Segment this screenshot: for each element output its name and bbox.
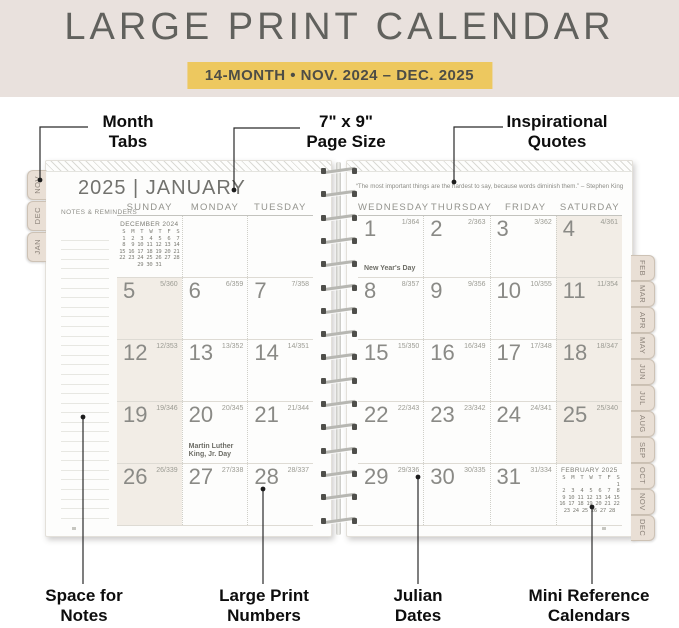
- day-number: 2: [430, 216, 442, 242]
- julian-date: 14/351: [288, 343, 309, 350]
- day-cell: 1212/353: [117, 340, 182, 401]
- right-month-grid: 11/364New Year's Day 22/363 33/362 44/36…: [358, 216, 622, 526]
- day-header-monday: MONDAY: [182, 202, 247, 213]
- day-cell: 1313/352: [182, 340, 248, 401]
- spiral-end-left: [321, 168, 326, 174]
- page-top-hatch: [46, 161, 331, 172]
- spiral-loop: [320, 422, 358, 432]
- mini-calendar-row: S M T W T F S: [118, 229, 181, 236]
- day-header-tuesday: TUESDAY: [248, 202, 313, 213]
- spiral-loop: [320, 283, 358, 293]
- tab-label: AUG: [638, 415, 647, 433]
- julian-date: 28/337: [288, 467, 309, 474]
- notes-lines: [61, 231, 109, 519]
- note-line: [61, 231, 109, 241]
- spiral-loop: [320, 259, 358, 269]
- day-number: 18: [563, 340, 587, 366]
- day-number: 22: [364, 402, 388, 428]
- callout-large-print-numbers: Large Print Numbers: [211, 586, 317, 626]
- julian-date: 25/340: [597, 405, 618, 412]
- day-cell: 77/358: [247, 278, 313, 339]
- day-cell: 66/359: [182, 278, 248, 339]
- julian-date: 6/359: [226, 281, 244, 288]
- day-number: 3: [497, 216, 509, 242]
- day-cell: 2323/342: [423, 402, 489, 463]
- tab-label: FEB: [638, 260, 647, 276]
- spiral-wire: [322, 376, 356, 384]
- julian-date: 31/334: [530, 467, 551, 474]
- spiral-end-left: [321, 401, 326, 407]
- callout-line: Page Size: [298, 132, 394, 152]
- day-header-thursday: THURSDAY: [429, 202, 493, 213]
- day-cell: 1515/350: [358, 340, 423, 401]
- spiral-end-right: [352, 448, 357, 454]
- mini-calendar-february: FEBRUARY 2025 S M T W T F S 1 2 3 4 5 6 …: [558, 467, 621, 515]
- day-cell: 11/364New Year's Day: [358, 216, 423, 277]
- julian-date: 20/345: [222, 405, 243, 412]
- julian-date: 2/363: [468, 219, 486, 226]
- julian-date: 11/354: [597, 281, 618, 288]
- week-row: 2626/339 2727/338 2828/337: [117, 464, 313, 526]
- day-number: 16: [430, 340, 454, 366]
- page-number-mark: [602, 527, 606, 530]
- spiral-wire: [322, 470, 356, 478]
- day-cell: [182, 216, 248, 277]
- month-tab-feb: FEB: [631, 255, 655, 281]
- tab-label: JUN: [638, 364, 647, 380]
- day-number: 10: [497, 278, 521, 304]
- mini-calendar-row: 29 30 31: [118, 262, 181, 269]
- day-cell: 33/362: [490, 216, 556, 277]
- julian-date: 22/343: [398, 405, 419, 412]
- note-line: [61, 500, 109, 510]
- callout-line: Calendars: [524, 606, 654, 626]
- week-row: 11/364New Year's Day 22/363 33/362 44/36…: [358, 216, 622, 278]
- mini-calendar-row: 22 23 24 25 26 27 28: [118, 255, 181, 262]
- note-line: [61, 375, 109, 385]
- spiral-wire: [322, 353, 356, 361]
- day-cell: DECEMBER 2024 S M T W T F S 1 2 3 4 5 6 …: [117, 216, 182, 277]
- day-number: 19: [123, 402, 147, 428]
- note-line: [61, 356, 109, 366]
- julian-date: 23/342: [464, 405, 485, 412]
- spiral-end-left: [321, 471, 326, 477]
- spiral-end-left: [321, 494, 326, 500]
- spiral-end-right: [352, 354, 357, 360]
- spiral-end-left: [321, 354, 326, 360]
- spiral-end-right: [352, 191, 357, 197]
- spiral-wire: [322, 423, 356, 431]
- day-number: 21: [254, 402, 278, 428]
- day-number: 31: [497, 464, 521, 490]
- month-tab-jul: JUL: [631, 385, 655, 411]
- julian-date: 17/348: [530, 343, 551, 350]
- month-title: 2025 | JANUARY: [78, 177, 246, 200]
- callout-line: Month: [90, 112, 166, 132]
- day-cell: 2828/337: [247, 464, 313, 525]
- day-cell: FEBRUARY 2025 S M T W T F S 1 2 3 4 5 6 …: [556, 464, 622, 525]
- tab-label: NOV: [638, 493, 647, 511]
- spiral-end-left: [321, 331, 326, 337]
- holiday-label: Martin Luther King, Jr. Day: [189, 443, 244, 459]
- day-cell: 1111/354: [556, 278, 622, 339]
- callout-julian-dates: Julian Dates: [372, 586, 464, 626]
- julian-date: 4/361: [600, 219, 618, 226]
- tab-label: OCT: [638, 467, 647, 484]
- note-line: [61, 241, 109, 251]
- spiral-loop: [320, 213, 358, 223]
- callout-line: 7" x 9": [298, 112, 394, 132]
- calendar-left-page: 2025 | JANUARY NOTES & REMINDERS SUNDAY …: [45, 160, 332, 537]
- day-of-week-headers: WEDNESDAY THURSDAY FRIDAY SATURDAY: [358, 201, 622, 216]
- note-line: [61, 269, 109, 279]
- julian-date: 27/338: [222, 467, 243, 474]
- day-number: 7: [254, 278, 266, 304]
- spiral-end-right: [352, 471, 357, 477]
- day-number: 13: [189, 340, 213, 366]
- spiral-wire: [322, 237, 356, 245]
- note-line: [61, 365, 109, 375]
- callout-line: Space for: [36, 586, 132, 606]
- month-tab-apr: APR: [631, 307, 655, 333]
- note-line: [61, 327, 109, 337]
- spiral-end-right: [352, 285, 357, 291]
- spiral-loop: [320, 189, 358, 199]
- callout-mini-reference-calendars: Mini Reference Calendars: [524, 586, 654, 626]
- inspirational-quote: “The most important things are the harde…: [347, 183, 632, 190]
- spiral-end-left: [321, 424, 326, 430]
- note-line: [61, 298, 109, 308]
- month-tab-may: MAY: [631, 333, 655, 359]
- day-number: 23: [430, 402, 454, 428]
- note-line: [61, 289, 109, 299]
- month-tab-dec: DEC: [27, 201, 46, 231]
- day-cell: 2727/338: [182, 464, 248, 525]
- callout-line: Quotes: [503, 132, 611, 152]
- spiral-loop: [320, 399, 358, 409]
- spiral-end-left: [321, 215, 326, 221]
- week-row: 1212/353 1313/352 1414/351: [117, 340, 313, 402]
- day-number: 30: [430, 464, 454, 490]
- mini-calendar-row: 1: [558, 482, 621, 489]
- julian-date: 10/355: [530, 281, 551, 288]
- note-line: [61, 279, 109, 289]
- spiral-wire: [322, 190, 356, 198]
- day-number: 28: [254, 464, 278, 490]
- note-line: [61, 308, 109, 318]
- spiral-end-left: [321, 448, 326, 454]
- month-tab-aug: AUG: [631, 411, 655, 437]
- day-number: 5: [123, 278, 135, 304]
- tab-label: JAN: [33, 239, 42, 255]
- spiral-end-left: [321, 308, 326, 314]
- day-cell: 1818/347: [556, 340, 622, 401]
- day-of-week-headers: SUNDAY MONDAY TUESDAY: [117, 201, 313, 216]
- month-tab-dec2: DEC: [631, 515, 655, 541]
- month-tab-nov: NOV: [27, 170, 46, 200]
- spiral-wire: [322, 516, 356, 524]
- callout-line: Large Print: [211, 586, 317, 606]
- day-cell: 2424/341: [490, 402, 556, 463]
- day-cell: [247, 216, 313, 277]
- spiral-end-left: [321, 378, 326, 384]
- week-row: 2929/336 3030/335 3131/334 FEBRUARY 2025…: [358, 464, 622, 526]
- note-line: [61, 260, 109, 270]
- day-cell: 1616/349: [423, 340, 489, 401]
- note-line: [61, 250, 109, 260]
- month-tab-jan: JAN: [27, 232, 46, 262]
- mini-calendar-row: 8 9 10 11 12 13 14: [118, 242, 181, 249]
- calendar-right-page: “The most important things are the harde…: [346, 160, 633, 537]
- day-number: 25: [563, 402, 587, 428]
- day-header-saturday: SATURDAY: [558, 202, 622, 213]
- julian-date: 15/350: [398, 343, 419, 350]
- callout-line: Notes: [36, 606, 132, 626]
- day-cell: 3030/335: [423, 464, 489, 525]
- day-cell: 2121/344: [247, 402, 313, 463]
- spiral-wire: [322, 213, 356, 221]
- callout-space-for-notes: Space for Notes: [36, 586, 132, 626]
- julian-date: 7/358: [291, 281, 309, 288]
- spiral-wire: [322, 283, 356, 291]
- spiral-end-right: [352, 331, 357, 337]
- week-row: 1515/350 1616/349 1717/348 1818/347: [358, 340, 622, 402]
- julian-date: 12/353: [156, 343, 177, 350]
- julian-date: 5/360: [160, 281, 178, 288]
- callout-line: Dates: [372, 606, 464, 626]
- mini-calendar-row: S M T W T F S: [558, 475, 621, 482]
- tab-label: DEC: [638, 519, 647, 536]
- note-line: [61, 385, 109, 395]
- day-cell: 2626/339: [117, 464, 182, 525]
- day-header-friday: FRIDAY: [494, 202, 558, 213]
- spiral-end-right: [352, 424, 357, 430]
- page-top-hatch: [347, 161, 632, 172]
- day-number: 17: [497, 340, 521, 366]
- week-row: 55/360 66/359 77/358: [117, 278, 313, 340]
- julian-date: 13/352: [222, 343, 243, 350]
- note-line: [61, 442, 109, 452]
- day-number: 9: [430, 278, 442, 304]
- note-line: [61, 346, 109, 356]
- spiral-wire: [322, 260, 356, 268]
- spiral-end-right: [352, 261, 357, 267]
- tab-label: SEP: [638, 442, 647, 459]
- note-line: [61, 490, 109, 500]
- spiral-loop: [320, 306, 358, 316]
- spiral-loop: [320, 516, 358, 526]
- spiral-loop: [320, 446, 358, 456]
- day-number: 11: [563, 278, 586, 304]
- spiral-end-right: [352, 518, 357, 524]
- tab-label: MAR: [638, 285, 647, 303]
- spiral-loop: [320, 376, 358, 386]
- day-number: 29: [364, 464, 388, 490]
- mini-calendar-december: DECEMBER 2024 S M T W T F S 1 2 3 4 5 6 …: [118, 221, 181, 269]
- note-line: [61, 317, 109, 327]
- note-line: [61, 404, 109, 414]
- day-cell: 3131/334: [490, 464, 556, 525]
- mini-calendar-row: 23 24 25 26 27 28: [558, 508, 621, 515]
- month-tab-oct: OCT: [631, 463, 655, 489]
- day-cell: 2525/340: [556, 402, 622, 463]
- product-title: LARGE PRINT CALENDAR: [0, 6, 679, 49]
- tab-label: MAY: [638, 337, 647, 354]
- spiral-end-right: [352, 401, 357, 407]
- spiral-loop: [320, 329, 358, 339]
- tab-label: DEC: [33, 207, 42, 224]
- spiral-loop: [320, 352, 358, 362]
- day-cell: 2020/345Martin Luther King, Jr. Day: [182, 402, 248, 463]
- day-number: 4: [563, 216, 575, 242]
- note-line: [61, 471, 109, 481]
- spiral-end-left: [321, 238, 326, 244]
- note-line: [61, 394, 109, 404]
- julian-date: 24/341: [530, 405, 551, 412]
- day-cell: 1717/348: [490, 340, 556, 401]
- tab-label: APR: [638, 312, 647, 329]
- spiral-wire: [322, 493, 356, 501]
- julian-date: 3/362: [534, 219, 552, 226]
- julian-date: 29/336: [398, 467, 419, 474]
- day-header-sunday: SUNDAY: [117, 202, 182, 213]
- julian-date: 1/364: [402, 219, 420, 226]
- callout-line: Mini Reference: [524, 586, 654, 606]
- spiral-binding: [320, 160, 358, 537]
- spiral-end-right: [352, 168, 357, 174]
- spiral-wire: [322, 330, 356, 338]
- julian-date: 21/344: [288, 405, 309, 412]
- callout-line: Numbers: [211, 606, 317, 626]
- date-range-badge: 14-MONTH • NOV. 2024 – DEC. 2025: [187, 62, 492, 89]
- mini-calendar-row: 16 17 18 19 20 21 22: [558, 501, 621, 508]
- callout-line: Inspirational: [503, 112, 611, 132]
- mini-calendar-row: 15 16 17 18 19 20 21: [118, 249, 181, 256]
- week-row: 2222/343 2323/342 2424/341 2525/340: [358, 402, 622, 464]
- spiral-wire: [322, 446, 356, 454]
- note-line: [61, 509, 109, 519]
- spiral-end-left: [321, 191, 326, 197]
- day-cell: 55/360: [117, 278, 182, 339]
- tab-label: JUL: [638, 391, 647, 406]
- note-line: [61, 461, 109, 471]
- day-cell: 88/357: [358, 278, 423, 339]
- day-number: 14: [254, 340, 278, 366]
- day-cell: 44/361: [556, 216, 622, 277]
- spiral-end-left: [321, 261, 326, 267]
- day-number: 8: [364, 278, 376, 304]
- note-line: [61, 423, 109, 433]
- week-row: 88/357 99/356 1010/355 1111/354: [358, 278, 622, 340]
- day-header-wednesday: WEDNESDAY: [358, 202, 429, 213]
- julian-date: 30/335: [464, 467, 485, 474]
- day-cell: 1010/355: [490, 278, 556, 339]
- day-cell: 2222/343: [358, 402, 423, 463]
- day-number: 12: [123, 340, 147, 366]
- week-row: 1919/346 2020/345Martin Luther King, Jr.…: [117, 402, 313, 464]
- julian-date: 9/356: [468, 281, 486, 288]
- tab-label: NOV: [33, 176, 42, 194]
- spiral-end-left: [321, 285, 326, 291]
- mini-calendar-row: 1 2 3 4 5 6 7: [118, 236, 181, 243]
- month-tab-jun: JUN: [631, 359, 655, 385]
- day-number: 20: [189, 402, 213, 428]
- julian-date: 26/339: [156, 467, 177, 474]
- note-line: [61, 413, 109, 423]
- spiral-loop: [320, 166, 358, 176]
- julian-date: 16/349: [464, 343, 485, 350]
- holiday-label: New Year's Day: [364, 265, 419, 273]
- julian-date: 19/346: [156, 405, 177, 412]
- day-cell: 22/363: [423, 216, 489, 277]
- day-number: 1: [364, 216, 376, 242]
- callout-month-tabs: Month Tabs: [90, 112, 166, 152]
- spiral-end-right: [352, 215, 357, 221]
- julian-date: 18/347: [597, 343, 618, 350]
- note-line: [61, 480, 109, 490]
- day-number: 24: [497, 402, 521, 428]
- mini-calendar-row: 2 3 4 5 6 7 8: [558, 488, 621, 495]
- note-line: [61, 452, 109, 462]
- spiral-loop: [320, 492, 358, 502]
- spiral-wire: [322, 306, 356, 314]
- day-number: 15: [364, 340, 388, 366]
- mini-calendar-title: FEBRUARY 2025: [558, 467, 621, 474]
- spiral-wire: [322, 167, 356, 175]
- product-infographic: LARGE PRINT CALENDAR 14-MONTH • NOV. 202…: [0, 0, 679, 628]
- callout-inspirational-quotes: Inspirational Quotes: [503, 112, 611, 152]
- spiral-end-left: [321, 518, 326, 524]
- spiral-end-right: [352, 308, 357, 314]
- page-number-mark: [72, 527, 76, 530]
- spiral-end-right: [352, 494, 357, 500]
- callout-line: Tabs: [90, 132, 166, 152]
- callout-page-size: 7" x 9" Page Size: [298, 112, 394, 152]
- mini-calendar-title: DECEMBER 2024: [118, 221, 181, 228]
- note-line: [61, 337, 109, 347]
- note-line: [61, 432, 109, 442]
- spiral-loop: [320, 236, 358, 246]
- header-banner: LARGE PRINT CALENDAR 14-MONTH • NOV. 202…: [0, 0, 679, 97]
- day-number: 27: [189, 464, 213, 490]
- month-tab-sep: SEP: [631, 437, 655, 463]
- spiral-wire: [322, 400, 356, 408]
- day-cell: 1919/346: [117, 402, 182, 463]
- day-cell: 99/356: [423, 278, 489, 339]
- julian-date: 8/357: [402, 281, 420, 288]
- callout-line: Julian: [372, 586, 464, 606]
- month-tab-nov2: NOV: [631, 489, 655, 515]
- day-number: 6: [189, 278, 201, 304]
- month-tab-mar: MAR: [631, 281, 655, 307]
- spiral-loop: [320, 469, 358, 479]
- day-cell: 1414/351: [247, 340, 313, 401]
- spiral-end-right: [352, 238, 357, 244]
- day-number: 26: [123, 464, 147, 490]
- left-month-grid: DECEMBER 2024 S M T W T F S 1 2 3 4 5 6 …: [117, 216, 313, 526]
- day-cell: 2929/336: [358, 464, 423, 525]
- week-row: DECEMBER 2024 S M T W T F S 1 2 3 4 5 6 …: [117, 216, 313, 278]
- spiral-end-right: [352, 378, 357, 384]
- mini-calendar-row: 9 10 11 12 13 14 15: [558, 495, 621, 502]
